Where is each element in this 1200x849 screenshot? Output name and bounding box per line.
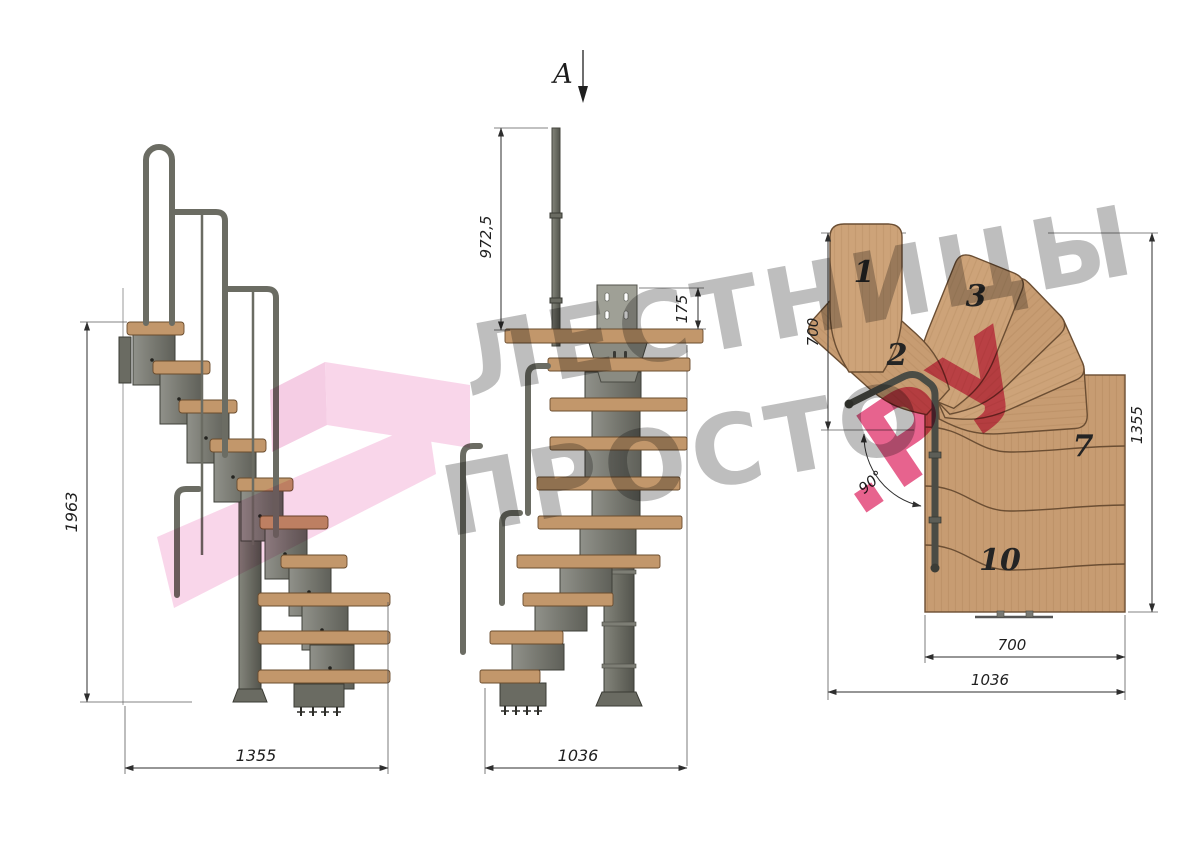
ribbon-fold (270, 362, 327, 452)
technical-drawing-canvas: 1963 1355 А (0, 0, 1200, 849)
ribbon-band-lower (157, 420, 436, 608)
